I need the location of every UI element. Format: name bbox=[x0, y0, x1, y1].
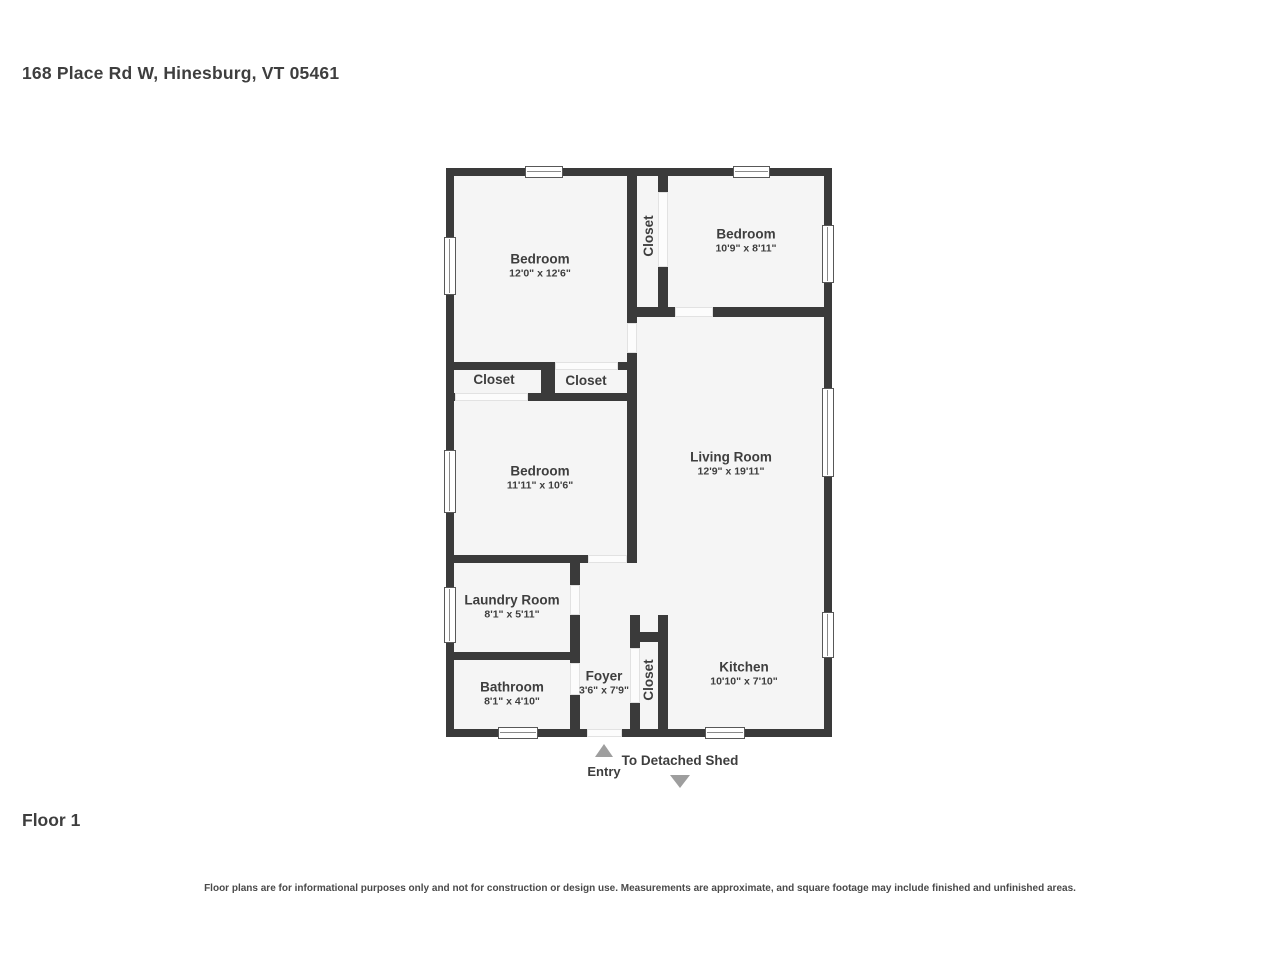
door-opening bbox=[455, 393, 528, 401]
floor-number-label: Floor 1 bbox=[22, 810, 80, 831]
room-dimensions: 11'11" x 10'6" bbox=[507, 480, 573, 493]
window bbox=[498, 727, 538, 739]
room-dimensions: 8'1" x 5'11" bbox=[464, 609, 559, 622]
room-name: Laundry Room bbox=[464, 593, 559, 609]
door-opening bbox=[675, 307, 713, 317]
page-title: 168 Place Rd W, Hinesburg, VT 05461 bbox=[22, 63, 339, 84]
window-pane-line bbox=[707, 732, 743, 733]
disclaimer-text: Floor plans are for informational purpos… bbox=[0, 883, 1280, 894]
door-opening bbox=[627, 323, 637, 353]
window-pane-line bbox=[449, 589, 450, 641]
room-name: Closet bbox=[641, 659, 657, 700]
window bbox=[444, 587, 456, 643]
floor-plan-page: 168 Place Rd W, Hinesburg, VT 05461 Bedr… bbox=[0, 0, 1280, 960]
room-label-bedroom: Bedroom10'9" x 8'11" bbox=[715, 227, 776, 256]
entry-label: Entry bbox=[587, 764, 620, 779]
room-name: Living Room bbox=[690, 450, 772, 466]
window-pane-line bbox=[827, 227, 828, 281]
wall bbox=[446, 652, 580, 660]
window bbox=[822, 388, 834, 477]
window bbox=[822, 612, 834, 658]
door-opening bbox=[658, 192, 668, 267]
room-dimensions: 12'0" x 12'6" bbox=[509, 268, 571, 281]
room-name: Bedroom bbox=[715, 227, 776, 243]
window bbox=[733, 166, 770, 178]
door-opening bbox=[587, 729, 622, 737]
room-name: Foyer bbox=[579, 669, 629, 685]
door-opening bbox=[630, 648, 640, 703]
room-label-closet: Closet bbox=[473, 372, 514, 388]
window bbox=[705, 727, 745, 739]
window-pane-line bbox=[735, 171, 768, 172]
wall bbox=[627, 307, 832, 317]
room-label-bathroom: Bathroom8'1" x 4'10" bbox=[480, 680, 544, 709]
room-name: Kitchen bbox=[710, 660, 778, 676]
room-name: Bathroom bbox=[480, 680, 544, 696]
window bbox=[822, 225, 834, 283]
room-dimensions: 8'1" x 4'10" bbox=[480, 696, 544, 709]
door-opening bbox=[570, 585, 580, 615]
room-dimensions: 3'6" x 7'9" bbox=[579, 685, 629, 698]
room-label-closet: Closet bbox=[641, 215, 657, 256]
window-pane-line bbox=[449, 239, 450, 293]
room-dimensions: 10'10" x 7'10" bbox=[710, 676, 778, 689]
room-label-bedroom: Bedroom11'11" x 10'6" bbox=[507, 464, 573, 493]
wall bbox=[446, 168, 832, 176]
room-name: Closet bbox=[473, 372, 514, 388]
window-pane-line bbox=[449, 452, 450, 511]
window-pane-line bbox=[827, 614, 828, 656]
room-label-kitchen: Kitchen10'10" x 7'10" bbox=[710, 660, 778, 689]
shed-arrow-icon bbox=[670, 775, 690, 788]
window bbox=[444, 237, 456, 295]
window-pane-line bbox=[827, 390, 828, 475]
entry-arrow-icon bbox=[595, 744, 613, 757]
room-label-foyer: Foyer3'6" x 7'9" bbox=[579, 669, 629, 698]
room-label-bedroom: Bedroom12'0" x 12'6" bbox=[509, 252, 571, 281]
room-name: Closet bbox=[641, 215, 657, 256]
room-name: Bedroom bbox=[509, 252, 571, 268]
door-opening bbox=[555, 362, 618, 370]
room-label-closet: Closet bbox=[641, 659, 657, 700]
wall bbox=[630, 632, 668, 642]
wall bbox=[570, 555, 580, 737]
window bbox=[444, 450, 456, 513]
room-name: Bedroom bbox=[507, 464, 573, 480]
room-label-closet: Closet bbox=[565, 373, 606, 389]
window bbox=[525, 166, 563, 178]
room-label-laundry-room: Laundry Room8'1" x 5'11" bbox=[464, 593, 559, 622]
room-dimensions: 12'9" x 19'11" bbox=[690, 466, 772, 479]
window-pane-line bbox=[500, 732, 536, 733]
window-pane-line bbox=[527, 171, 561, 172]
room-dimensions: 10'9" x 8'11" bbox=[715, 243, 776, 256]
shed-label: To Detached Shed bbox=[622, 753, 739, 768]
door-opening bbox=[588, 555, 627, 563]
room-name: Closet bbox=[565, 373, 606, 389]
room-label-living-room: Living Room12'9" x 19'11" bbox=[690, 450, 772, 479]
